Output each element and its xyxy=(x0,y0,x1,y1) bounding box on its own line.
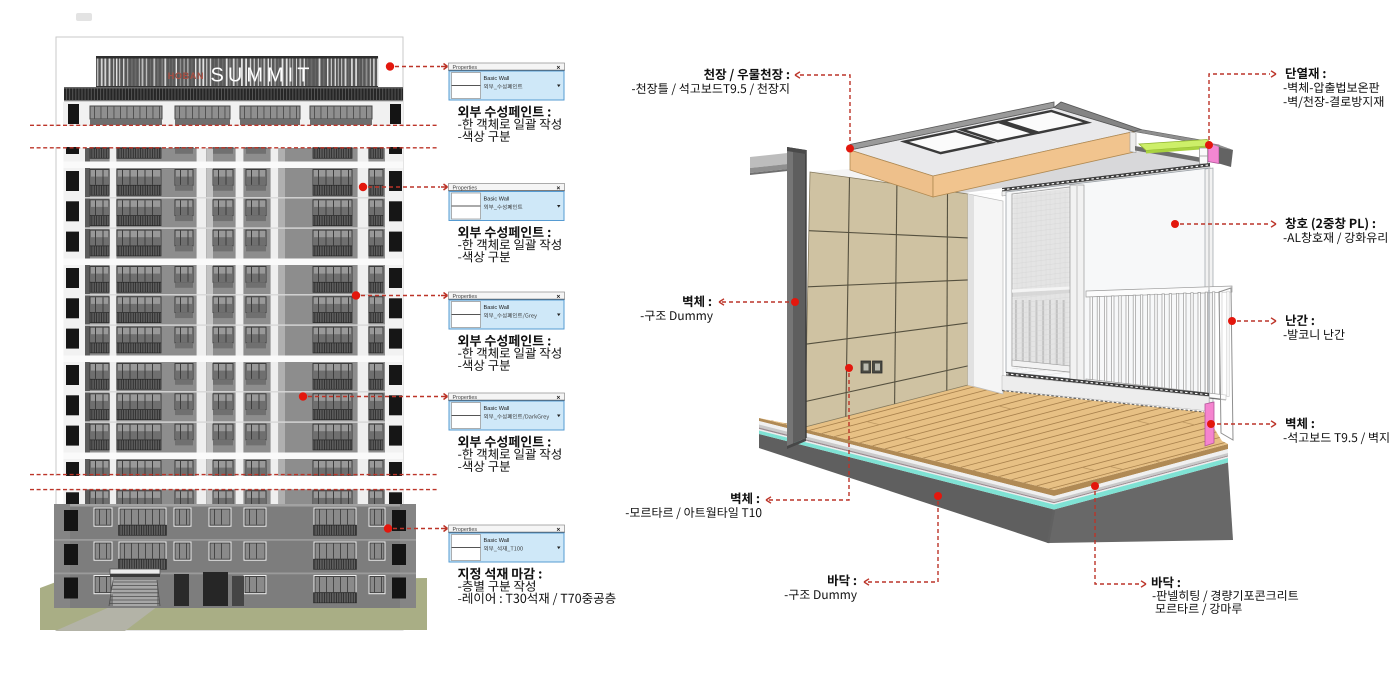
svg-text:Basic Wall: Basic Wall xyxy=(484,197,510,203)
svg-text:Basic Wall: Basic Wall xyxy=(484,76,510,82)
svg-text:Properties: Properties xyxy=(453,294,478,300)
svg-text:Properties: Properties xyxy=(453,186,478,192)
svg-text:×: × xyxy=(557,64,561,71)
svg-text:Basic Wall: Basic Wall xyxy=(484,305,510,311)
svg-text:HOBAN: HOBAN xyxy=(168,71,205,81)
svg-text:SUMMIT: SUMMIT xyxy=(211,65,314,87)
svg-text:×: × xyxy=(557,526,561,533)
svg-text:Properties: Properties xyxy=(453,527,478,533)
svg-text:Basic Wall: Basic Wall xyxy=(484,406,510,412)
svg-text:Basic Wall: Basic Wall xyxy=(484,538,510,544)
svg-text:×: × xyxy=(557,394,561,401)
svg-text:×: × xyxy=(557,293,561,300)
svg-text:×: × xyxy=(557,185,561,192)
svg-text:Properties: Properties xyxy=(453,65,478,71)
svg-text:Properties: Properties xyxy=(453,395,478,401)
